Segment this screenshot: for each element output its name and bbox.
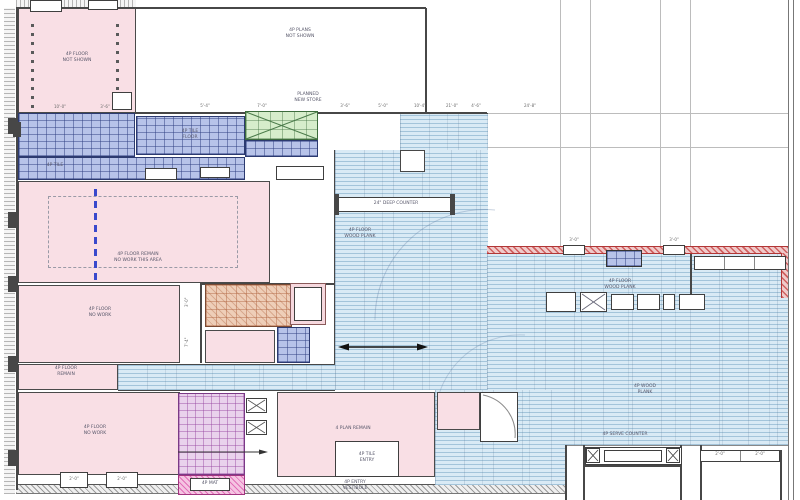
counter-end-cap	[450, 194, 455, 215]
wall-v-bath	[200, 283, 202, 363]
floor-plan-canvas: 4P FLOOR NOT SHOWN 4P PLANS NOT SHOWN PL…	[0, 0, 800, 500]
dim: 4'-6"	[471, 104, 480, 109]
grid-line-v	[560, 0, 561, 247]
dim: 10'-4"	[414, 104, 426, 109]
roof-access-box	[30, 0, 62, 12]
skylight-x-icon	[245, 111, 318, 140]
back-counter	[694, 256, 786, 270]
room-label: 4P FLOOR NO WORK	[84, 425, 106, 436]
counter-divider	[724, 257, 725, 269]
counter-end-cap	[334, 194, 339, 215]
room-restroom-tan	[205, 284, 292, 327]
window-mullion-dashes	[31, 18, 34, 108]
dim: 24'-8"	[524, 104, 536, 109]
dim: 2'-0"	[117, 477, 126, 482]
sink-fixture	[200, 167, 230, 178]
room-pink-west	[18, 285, 180, 363]
dim: 7'-0"	[257, 104, 266, 109]
counter-x-icon	[586, 448, 600, 463]
dim: 2'-0"	[755, 452, 764, 457]
counter-x-icon	[666, 448, 680, 463]
sink-fixture	[145, 168, 177, 180]
room-tile-bath	[277, 327, 310, 363]
vestibule-note: 4P ENTRY VESTIBULE	[343, 480, 368, 491]
grid-line-v	[590, 0, 591, 247]
left-window-strip	[4, 8, 15, 494]
equipment-box	[606, 250, 642, 267]
wall-v	[780, 450, 782, 500]
room-label: 4P TILE	[47, 163, 63, 169]
entry-closet	[276, 166, 324, 180]
dim: 2'-0"	[715, 452, 724, 457]
dim: 3'-0"	[669, 238, 678, 243]
sliding-arrow-icon	[338, 340, 428, 354]
section-arrow-icon	[178, 448, 268, 456]
counter-sink-inset	[604, 450, 662, 462]
planned-store-note: PLANNED NEW STORE	[294, 92, 321, 103]
room-label: 4P FLOOR REMAIN NO WORK THIS AREA	[114, 252, 162, 263]
bottom-wall-band	[16, 484, 565, 494]
dim: 21'-0"	[446, 104, 458, 109]
room-label: 4P FLOOR REMAIN	[55, 366, 77, 377]
dim: 3'-0"	[569, 238, 578, 243]
counter-note: 4P SERVE COUNTER	[602, 432, 647, 438]
lease-line-right	[788, 0, 789, 500]
kitchen-unit	[611, 294, 634, 310]
plank-label: 4P WOOD PLANK	[634, 384, 656, 395]
dim: 2'-0"	[69, 477, 78, 482]
wall-v	[565, 445, 567, 500]
door-opening	[563, 245, 585, 255]
plank-label: 4P FLOOR WOOD PLANK	[344, 228, 375, 239]
kitchen-unit	[679, 294, 705, 310]
dim-vertical: 7'-4"	[185, 338, 190, 347]
room-label: 4P TILE FLOOR	[182, 129, 198, 140]
door-swing-arc	[480, 392, 518, 442]
wall-v-top-white	[425, 8, 427, 113]
room-label: 4P FLOOR NOT SHOWN	[63, 52, 92, 63]
kitchen-unit	[546, 292, 576, 312]
area-note: 4P PLANS NOT SHOWN	[286, 28, 315, 39]
lease-line-right-outer	[793, 0, 794, 500]
wall-h	[583, 465, 682, 467]
room-label: 4P FLOOR NO WORK	[89, 307, 111, 318]
grid-line-v	[690, 0, 691, 247]
room-label: 4 PLAN REMAIN	[335, 426, 370, 432]
tub-fixture	[294, 287, 322, 321]
dim: 10'-0"	[54, 105, 66, 110]
toilet-x-icon	[246, 398, 267, 413]
dim: 3'-6"	[340, 104, 349, 109]
counter-divider	[754, 257, 755, 269]
corridor-plank	[118, 364, 335, 391]
mat-label: 4P MAT	[202, 481, 218, 487]
wall-v-small	[690, 253, 692, 300]
toilet-x-icon	[246, 420, 267, 435]
kitchen-unit	[637, 294, 660, 310]
plank-label: 4P FLOOR WOOD PLANK	[604, 279, 635, 290]
grid-line-h	[487, 113, 788, 114]
room-pink-small-right	[437, 392, 480, 430]
dim: 5'-4"	[200, 104, 209, 109]
grid-line-v	[660, 0, 661, 247]
grid-line-h	[487, 147, 788, 148]
column	[13, 122, 21, 137]
kitchen-sink	[663, 294, 675, 310]
room-tile-west	[18, 113, 135, 157]
dim: 5'-0"	[378, 104, 387, 109]
door-opening	[663, 245, 685, 255]
room-tile-small	[245, 140, 318, 157]
room-pink-bath-lobby	[205, 330, 275, 363]
range-x-icon	[580, 292, 607, 312]
room-restroom-purple	[178, 393, 245, 475]
dim: 3'-6"	[100, 105, 109, 110]
dim-vertical: 3'-0"	[185, 298, 190, 307]
closet-box	[112, 92, 132, 110]
roof-access-box	[88, 0, 118, 10]
door-swing-arc	[370, 200, 500, 330]
counter-label: 24" DEEP COUNTER	[374, 201, 419, 207]
inset-label: 4P TILE ENTRY	[359, 452, 375, 463]
counter-divider	[740, 451, 741, 461]
wall-notch	[400, 150, 425, 172]
demising-dashed-line	[94, 184, 97, 280]
